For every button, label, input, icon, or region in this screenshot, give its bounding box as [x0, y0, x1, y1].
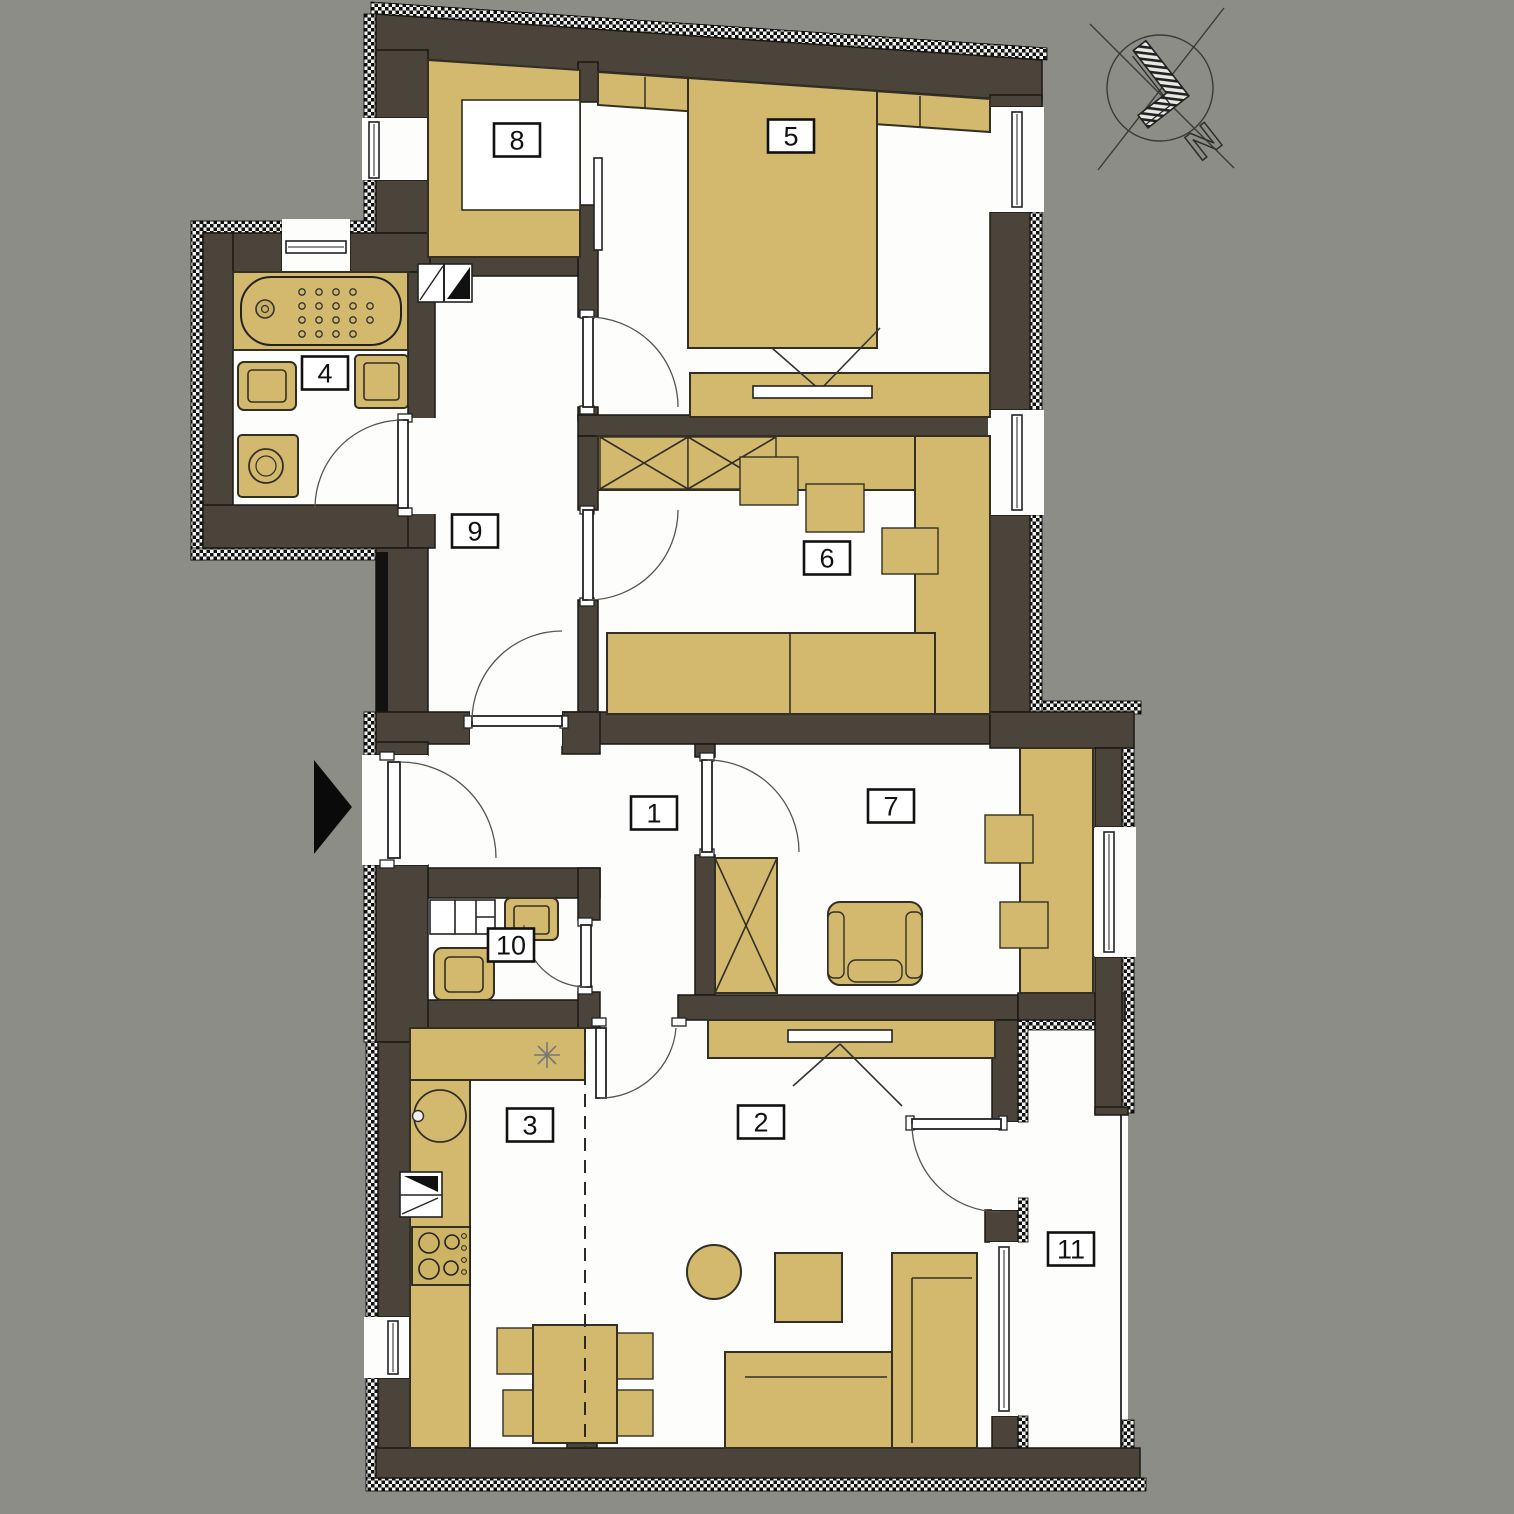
- window-room7-right: [1095, 827, 1136, 957]
- sofa-horizontal: [725, 1352, 892, 1448]
- wall-room7-right-a: [1095, 748, 1122, 827]
- room-label-3: 3: [507, 1109, 553, 1142]
- room-label-4: 4: [302, 357, 348, 390]
- living-tv: [788, 1030, 892, 1042]
- room-label-10: 10: [488, 929, 534, 962]
- kitchen-counter-top: [410, 1028, 585, 1080]
- room-label-11: 11: [1048, 1233, 1094, 1266]
- room6-bed: [607, 633, 935, 714]
- floor-plan-canvas: 1 2 3 4 5 6 7 8: [0, 0, 1514, 1514]
- window-kitchen-left: [364, 1317, 410, 1378]
- svg-text:4: 4: [317, 359, 332, 389]
- armchair: [828, 902, 922, 985]
- shaft-corridor: [418, 264, 472, 302]
- svg-text:11: 11: [1057, 1235, 1085, 1265]
- svg-text:8: 8: [509, 126, 524, 156]
- window-room5-right: [988, 107, 1044, 212]
- room8-wardrobe: [428, 60, 580, 257]
- room6-chair-1: [740, 457, 798, 505]
- room-label-1: 1: [631, 797, 677, 830]
- washing-machine: [238, 435, 298, 497]
- room-label-9: 9: [452, 515, 498, 548]
- window-room2-balcony: [990, 1242, 1018, 1416]
- room-label-2: 2: [738, 1106, 784, 1139]
- dining-table: [533, 1325, 617, 1443]
- pouf: [687, 1245, 741, 1299]
- wall-party-edge: [376, 552, 388, 712]
- room7-chair-1: [985, 815, 1033, 863]
- room-label-8: 8: [494, 124, 540, 157]
- floor-plan-drawing: 1 2 3 4 5 6 7 8: [0, 0, 1514, 1514]
- room-label-5: 5: [768, 120, 814, 153]
- svg-text:6: 6: [819, 544, 834, 574]
- svg-text:7: 7: [883, 792, 898, 822]
- shaft-wc: [430, 900, 495, 934]
- room7-chair-2: [1000, 902, 1048, 948]
- wall-room5-room6: [578, 415, 990, 436]
- coffee-table: [775, 1253, 842, 1322]
- window-room6-right: [988, 410, 1044, 515]
- room-label-6: 6: [804, 542, 850, 575]
- room7-desk: [1020, 748, 1093, 993]
- window-bath-top: [282, 219, 350, 273]
- kitchen-faucet-icon: [413, 1111, 424, 1122]
- bathtub-drain-icon: [256, 300, 274, 318]
- room6-chair-2: [806, 484, 864, 532]
- room-label-7: 7: [868, 790, 914, 823]
- wall-living-top: [678, 995, 1018, 1020]
- window-room8-left: [362, 118, 428, 180]
- room5-tv: [753, 386, 872, 398]
- room5-sliding-panel: [594, 158, 602, 250]
- room6-chair-3: [882, 528, 938, 574]
- svg-text:2: 2: [753, 1108, 768, 1138]
- svg-text:5: 5: [783, 122, 798, 152]
- svg-text:9: 9: [467, 517, 482, 547]
- svg-text:10: 10: [496, 931, 526, 961]
- wall-kitchen-top: [410, 1000, 592, 1028]
- svg-text:3: 3: [522, 1111, 537, 1141]
- sofa-vertical: [892, 1253, 977, 1448]
- shaft-kitchen: [400, 1172, 442, 1217]
- wall-wc-top: [428, 868, 600, 898]
- wall-bottom: [376, 1448, 1140, 1478]
- svg-text:1: 1: [646, 799, 661, 829]
